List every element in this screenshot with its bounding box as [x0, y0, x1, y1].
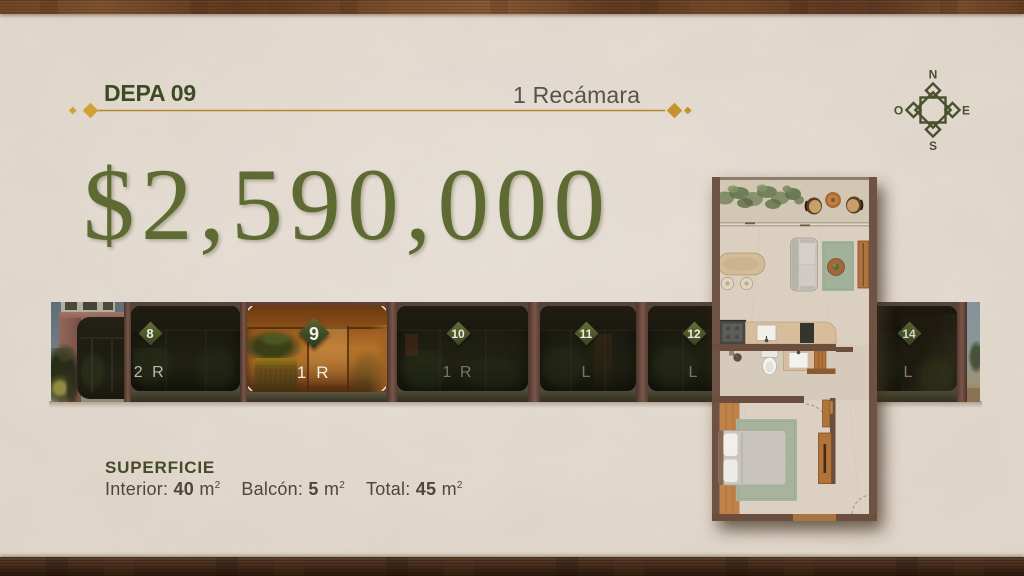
svg-text:N: N [929, 68, 938, 82]
svg-text:E: E [962, 104, 970, 118]
svg-text:S: S [929, 139, 937, 153]
svg-text:O: O [894, 104, 903, 118]
